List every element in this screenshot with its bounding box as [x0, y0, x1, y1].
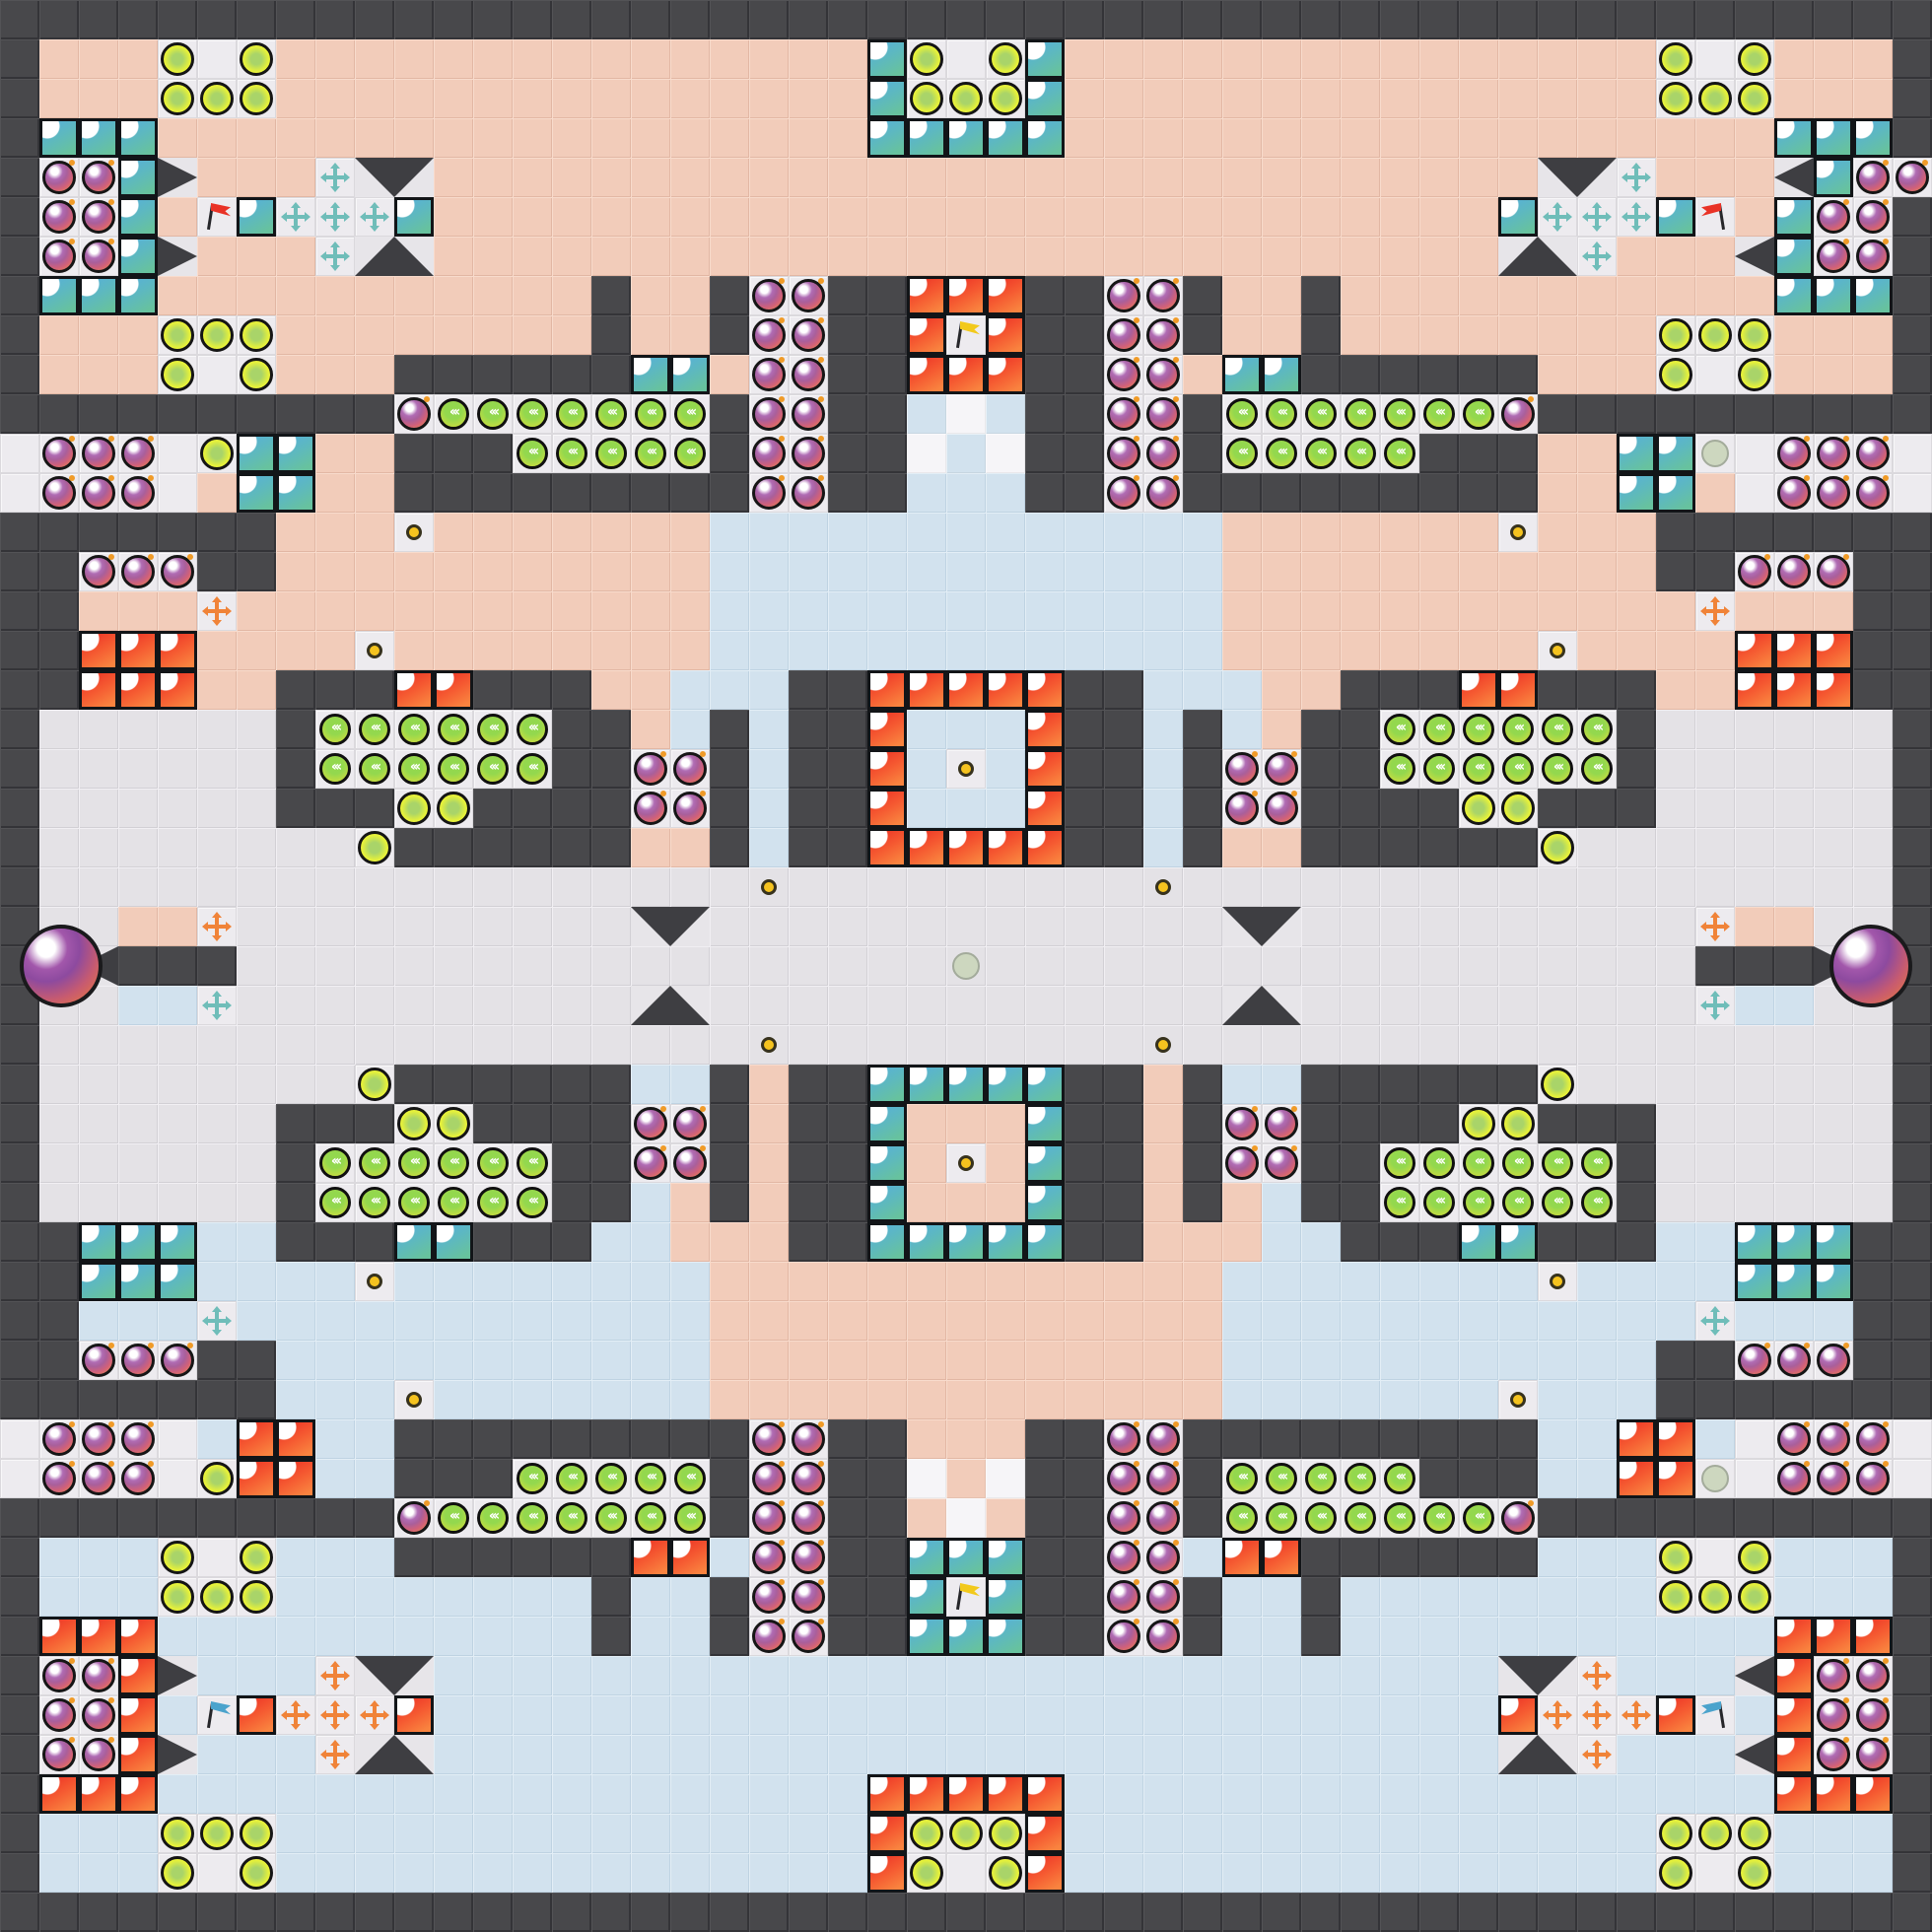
- teal-block[interactable]: [907, 1065, 946, 1104]
- bomb-item[interactable]: [1104, 1419, 1143, 1459]
- bomb-item[interactable]: [789, 276, 828, 315]
- bomb-item[interactable]: [1143, 276, 1183, 315]
- green-boost-item[interactable]: [1538, 1143, 1577, 1183]
- teal-block[interactable]: [1617, 434, 1656, 473]
- yellow-powerup-item[interactable]: [1656, 39, 1695, 79]
- bomb-item[interactable]: [1143, 473, 1183, 513]
- green-boost-item[interactable]: [1419, 1183, 1459, 1222]
- bomb-item[interactable]: [1814, 434, 1853, 473]
- yellow-powerup-item[interactable]: [1735, 1577, 1774, 1617]
- bomb-item[interactable]: [789, 1419, 828, 1459]
- bomb-item[interactable]: [1104, 1617, 1143, 1656]
- yellow-powerup-item[interactable]: [237, 355, 276, 394]
- teal-move-cross-icon[interactable]: [315, 158, 355, 197]
- green-boost-item[interactable]: [394, 1183, 434, 1222]
- red-block[interactable]: [1814, 1774, 1853, 1814]
- bomb-item[interactable]: [789, 1617, 828, 1656]
- bomb-item[interactable]: [1143, 1617, 1183, 1656]
- yellow-powerup-item[interactable]: [1735, 79, 1774, 118]
- teal-block[interactable]: [986, 1577, 1025, 1617]
- green-boost-item[interactable]: [434, 1143, 473, 1183]
- bomb-item[interactable]: [118, 473, 158, 513]
- bomb-item[interactable]: [1814, 1735, 1853, 1774]
- pellet-item[interactable]: [355, 631, 394, 670]
- teal-block[interactable]: [276, 473, 315, 513]
- green-boost-item[interactable]: [513, 1459, 552, 1498]
- green-boost-item[interactable]: [1262, 1498, 1301, 1538]
- pellet-item[interactable]: [749, 867, 789, 907]
- yellow-powerup-item[interactable]: [197, 79, 237, 118]
- bomb-item[interactable]: [118, 434, 158, 473]
- yellow-powerup-item[interactable]: [197, 1814, 237, 1853]
- yellow-powerup-item[interactable]: [237, 1538, 276, 1577]
- red-block[interactable]: [276, 1419, 315, 1459]
- green-boost-item[interactable]: [473, 1183, 513, 1222]
- yellow-powerup-item[interactable]: [986, 1814, 1025, 1853]
- green-boost-item[interactable]: [1459, 1498, 1498, 1538]
- bomb-item[interactable]: [1262, 1143, 1301, 1183]
- red-block[interactable]: [1025, 670, 1065, 710]
- teal-block[interactable]: [158, 1222, 197, 1262]
- bomb-item[interactable]: [1143, 1538, 1183, 1577]
- teal-block[interactable]: [867, 1065, 907, 1104]
- red-block[interactable]: [1853, 1617, 1893, 1656]
- green-boost-item[interactable]: [1498, 1183, 1538, 1222]
- pellet-item[interactable]: [1538, 631, 1577, 670]
- green-boost-item[interactable]: [1577, 749, 1617, 789]
- bomb-item[interactable]: [670, 749, 710, 789]
- right-orb-ball[interactable]: [1829, 925, 1912, 1007]
- teal-block[interactable]: [946, 1222, 986, 1262]
- bomb-item[interactable]: [394, 1498, 434, 1538]
- teal-block[interactable]: [1853, 276, 1893, 315]
- green-boost-item[interactable]: [591, 434, 631, 473]
- bomb-item[interactable]: [1893, 158, 1932, 197]
- teal-block[interactable]: [907, 118, 946, 158]
- green-boost-item[interactable]: [1380, 434, 1419, 473]
- bomb-item[interactable]: [1104, 355, 1143, 394]
- orange-move-cross-icon[interactable]: [1577, 1656, 1617, 1695]
- red-block[interactable]: [631, 1538, 670, 1577]
- yellow-powerup-item[interactable]: [197, 1577, 237, 1617]
- green-boost-item[interactable]: [1459, 1143, 1498, 1183]
- teal-block[interactable]: [237, 197, 276, 237]
- green-boost-item[interactable]: [355, 710, 394, 749]
- bomb-item[interactable]: [1262, 749, 1301, 789]
- bomb-item[interactable]: [789, 394, 828, 434]
- bomb-item[interactable]: [1222, 1143, 1262, 1183]
- yellow-powerup-item[interactable]: [986, 1853, 1025, 1893]
- teal-block[interactable]: [118, 158, 158, 197]
- yellow-powerup-item[interactable]: [158, 79, 197, 118]
- teal-block[interactable]: [118, 197, 158, 237]
- red-block[interactable]: [907, 828, 946, 867]
- bomb-item[interactable]: [1143, 1577, 1183, 1617]
- red-block[interactable]: [1025, 710, 1065, 749]
- red-block[interactable]: [1617, 1419, 1656, 1459]
- yellow-powerup-item[interactable]: [1735, 1538, 1774, 1577]
- green-boost-item[interactable]: [434, 1183, 473, 1222]
- bomb-item[interactable]: [39, 1656, 79, 1695]
- yellow-powerup-item[interactable]: [1656, 1577, 1695, 1617]
- teal-block[interactable]: [394, 197, 434, 237]
- yellow-powerup-item[interactable]: [158, 1538, 197, 1577]
- red-block[interactable]: [867, 749, 907, 789]
- red-block[interactable]: [867, 1814, 907, 1853]
- green-boost-item[interactable]: [1419, 1143, 1459, 1183]
- bomb-item[interactable]: [1104, 315, 1143, 355]
- red-block[interactable]: [1025, 1774, 1065, 1814]
- green-boost-item[interactable]: [355, 749, 394, 789]
- teal-block[interactable]: [1025, 1104, 1065, 1143]
- teal-block[interactable]: [118, 1262, 158, 1301]
- green-boost-item[interactable]: [1498, 1143, 1538, 1183]
- bomb-item[interactable]: [789, 1459, 828, 1498]
- bomb-item[interactable]: [1853, 1656, 1893, 1695]
- orange-move-cross-icon[interactable]: [197, 591, 237, 631]
- green-boost-item[interactable]: [1538, 1183, 1577, 1222]
- green-boost-item[interactable]: [631, 434, 670, 473]
- bomb-item[interactable]: [670, 1104, 710, 1143]
- bomb-item[interactable]: [749, 394, 789, 434]
- red-block[interactable]: [946, 276, 986, 315]
- bomb-item[interactable]: [1814, 1341, 1853, 1380]
- red-block[interactable]: [867, 710, 907, 749]
- yellow-powerup-item[interactable]: [986, 79, 1025, 118]
- red-block[interactable]: [1853, 1774, 1893, 1814]
- teal-block[interactable]: [1774, 1262, 1814, 1301]
- red-block[interactable]: [158, 670, 197, 710]
- bomb-item[interactable]: [1774, 434, 1814, 473]
- orange-move-cross-icon[interactable]: [355, 1695, 394, 1735]
- teal-move-cross-icon[interactable]: [315, 237, 355, 276]
- red-flag[interactable]: [197, 197, 237, 237]
- teal-block[interactable]: [907, 1222, 946, 1262]
- green-boost-item[interactable]: [670, 1498, 710, 1538]
- left-orb-ball[interactable]: [20, 925, 103, 1007]
- teal-block[interactable]: [867, 1143, 907, 1183]
- green-boost-item[interactable]: [315, 749, 355, 789]
- teal-block[interactable]: [1774, 1222, 1814, 1262]
- pellet-item[interactable]: [1498, 513, 1538, 552]
- teal-block[interactable]: [276, 434, 315, 473]
- yellow-powerup-item[interactable]: [1538, 1065, 1577, 1104]
- green-boost-item[interactable]: [1577, 710, 1617, 749]
- green-boost-item[interactable]: [1538, 749, 1577, 789]
- orange-move-cross-icon[interactable]: [1577, 1735, 1617, 1774]
- red-block[interactable]: [1025, 789, 1065, 828]
- bomb-item[interactable]: [118, 552, 158, 591]
- red-block[interactable]: [867, 828, 907, 867]
- bomb-item[interactable]: [1853, 197, 1893, 237]
- bomb-item[interactable]: [1143, 1498, 1183, 1538]
- bomb-item[interactable]: [1735, 552, 1774, 591]
- bomb-item[interactable]: [670, 789, 710, 828]
- pellet-item[interactable]: [1143, 867, 1183, 907]
- bomb-item[interactable]: [749, 473, 789, 513]
- teal-block[interactable]: [1262, 355, 1301, 394]
- yellow-flag[interactable]: [946, 1577, 986, 1617]
- yellow-powerup-item[interactable]: [1735, 1853, 1774, 1893]
- green-boost-item[interactable]: [1341, 1498, 1380, 1538]
- pellet-item[interactable]: [749, 1025, 789, 1065]
- yellow-powerup-item[interactable]: [237, 1853, 276, 1893]
- red-block[interactable]: [946, 355, 986, 394]
- yellow-flag[interactable]: [946, 315, 986, 355]
- yellow-powerup-item[interactable]: [237, 39, 276, 79]
- teal-block[interactable]: [946, 1538, 986, 1577]
- bomb-item[interactable]: [749, 1577, 789, 1617]
- teal-move-cross-icon[interactable]: [1695, 1301, 1735, 1341]
- green-boost-item[interactable]: [513, 710, 552, 749]
- red-block[interactable]: [946, 1774, 986, 1814]
- bomb-item[interactable]: [1498, 394, 1538, 434]
- bomb-item[interactable]: [79, 1695, 118, 1735]
- teal-block[interactable]: [867, 79, 907, 118]
- bomb-item[interactable]: [79, 1459, 118, 1498]
- pellet-item[interactable]: [355, 1262, 394, 1301]
- red-block[interactable]: [946, 670, 986, 710]
- red-block[interactable]: [237, 1459, 276, 1498]
- red-block[interactable]: [118, 631, 158, 670]
- red-block[interactable]: [1656, 1459, 1695, 1498]
- teal-block[interactable]: [1656, 197, 1695, 237]
- green-boost-item[interactable]: [552, 1459, 591, 1498]
- teal-block[interactable]: [1025, 118, 1065, 158]
- red-block[interactable]: [1774, 1774, 1814, 1814]
- green-boost-item[interactable]: [513, 1498, 552, 1538]
- bomb-item[interactable]: [631, 1104, 670, 1143]
- yellow-powerup-item[interactable]: [1735, 315, 1774, 355]
- bomb-item[interactable]: [1774, 1419, 1814, 1459]
- bomb-item[interactable]: [1222, 1104, 1262, 1143]
- green-boost-item[interactable]: [1262, 1459, 1301, 1498]
- bomb-item[interactable]: [1853, 473, 1893, 513]
- teal-move-cross-icon[interactable]: [1577, 237, 1617, 276]
- green-boost-item[interactable]: [670, 1459, 710, 1498]
- bomb-item[interactable]: [79, 552, 118, 591]
- green-boost-item[interactable]: [591, 394, 631, 434]
- green-boost-item[interactable]: [513, 749, 552, 789]
- green-boost-item[interactable]: [1459, 749, 1498, 789]
- bomb-item[interactable]: [394, 394, 434, 434]
- bomb-item[interactable]: [789, 473, 828, 513]
- green-boost-item[interactable]: [591, 1459, 631, 1498]
- bomb-item[interactable]: [39, 473, 79, 513]
- green-boost-item[interactable]: [1341, 434, 1380, 473]
- teal-block[interactable]: [986, 1065, 1025, 1104]
- yellow-powerup-item[interactable]: [1656, 1814, 1695, 1853]
- yellow-powerup-item[interactable]: [946, 79, 986, 118]
- teal-block[interactable]: [79, 118, 118, 158]
- red-block[interactable]: [1774, 631, 1814, 670]
- yellow-powerup-item[interactable]: [158, 1853, 197, 1893]
- red-block[interactable]: [1774, 1617, 1814, 1656]
- teal-block[interactable]: [867, 1104, 907, 1143]
- bomb-item[interactable]: [1814, 1459, 1853, 1498]
- bomb-item[interactable]: [789, 1538, 828, 1577]
- red-block[interactable]: [1459, 670, 1498, 710]
- bomb-item[interactable]: [79, 1419, 118, 1459]
- teal-block[interactable]: [986, 1538, 1025, 1577]
- green-boost-item[interactable]: [394, 710, 434, 749]
- red-block[interactable]: [986, 828, 1025, 867]
- green-boost-item[interactable]: [434, 749, 473, 789]
- bomb-item[interactable]: [118, 1459, 158, 1498]
- green-boost-item[interactable]: [591, 1498, 631, 1538]
- green-boost-item[interactable]: [1498, 749, 1538, 789]
- green-boost-item[interactable]: [1380, 394, 1419, 434]
- teal-move-cross-icon[interactable]: [197, 986, 237, 1025]
- green-boost-item[interactable]: [473, 1498, 513, 1538]
- yellow-powerup-item[interactable]: [434, 789, 473, 828]
- green-boost-item[interactable]: [1419, 1498, 1459, 1538]
- bomb-item[interactable]: [1814, 1656, 1853, 1695]
- yellow-powerup-item[interactable]: [355, 828, 394, 867]
- red-block[interactable]: [1656, 1695, 1695, 1735]
- green-boost-item[interactable]: [1459, 394, 1498, 434]
- bomb-item[interactable]: [1853, 1459, 1893, 1498]
- pellet-item[interactable]: [394, 513, 434, 552]
- yellow-powerup-item[interactable]: [394, 1104, 434, 1143]
- yellow-powerup-item[interactable]: [237, 1814, 276, 1853]
- red-block[interactable]: [1656, 1419, 1695, 1459]
- teal-move-cross-icon[interactable]: [1617, 197, 1656, 237]
- teal-block[interactable]: [986, 1222, 1025, 1262]
- bomb-item[interactable]: [1853, 1419, 1893, 1459]
- bomb-item[interactable]: [1104, 1538, 1143, 1577]
- bomb-item[interactable]: [1814, 552, 1853, 591]
- teal-block[interactable]: [907, 1577, 946, 1617]
- red-block[interactable]: [118, 1617, 158, 1656]
- bomb-item[interactable]: [1735, 1341, 1774, 1380]
- bomb-item[interactable]: [1853, 158, 1893, 197]
- bomb-item[interactable]: [1143, 1419, 1183, 1459]
- orange-move-cross-icon[interactable]: [197, 907, 237, 946]
- teal-move-cross-icon[interactable]: [355, 197, 394, 237]
- red-block[interactable]: [394, 1695, 434, 1735]
- bomb-item[interactable]: [118, 1341, 158, 1380]
- teal-block[interactable]: [1853, 118, 1893, 158]
- red-block[interactable]: [39, 1774, 79, 1814]
- bomb-item[interactable]: [1143, 394, 1183, 434]
- bomb-item[interactable]: [39, 1735, 79, 1774]
- yellow-powerup-item[interactable]: [986, 39, 1025, 79]
- orange-move-cross-icon[interactable]: [315, 1695, 355, 1735]
- teal-block[interactable]: [1774, 237, 1814, 276]
- red-block[interactable]: [986, 315, 1025, 355]
- yellow-powerup-item[interactable]: [434, 1104, 473, 1143]
- yellow-powerup-item[interactable]: [1656, 1538, 1695, 1577]
- bomb-item[interactable]: [749, 1419, 789, 1459]
- red-block[interactable]: [907, 670, 946, 710]
- teal-block[interactable]: [1498, 197, 1538, 237]
- orange-move-cross-icon[interactable]: [1617, 1695, 1656, 1735]
- red-block[interactable]: [79, 1617, 118, 1656]
- bomb-item[interactable]: [1814, 1419, 1853, 1459]
- teal-move-cross-icon[interactable]: [315, 197, 355, 237]
- yellow-powerup-item[interactable]: [1498, 1104, 1538, 1143]
- red-block[interactable]: [946, 828, 986, 867]
- yellow-powerup-item[interactable]: [1656, 315, 1695, 355]
- bomb-item[interactable]: [749, 434, 789, 473]
- green-boost-item[interactable]: [1459, 710, 1498, 749]
- yellow-powerup-item[interactable]: [907, 1853, 946, 1893]
- green-boost-item[interactable]: [631, 394, 670, 434]
- red-block[interactable]: [118, 1656, 158, 1695]
- red-block[interactable]: [1735, 631, 1774, 670]
- green-boost-item[interactable]: [434, 1498, 473, 1538]
- yellow-powerup-item[interactable]: [1735, 1814, 1774, 1853]
- blue-flag[interactable]: [197, 1695, 237, 1735]
- bomb-item[interactable]: [1222, 789, 1262, 828]
- red-block[interactable]: [986, 670, 1025, 710]
- teal-block[interactable]: [118, 1222, 158, 1262]
- green-boost-item[interactable]: [315, 710, 355, 749]
- bomb-item[interactable]: [631, 749, 670, 789]
- teal-block[interactable]: [1656, 434, 1695, 473]
- teal-block[interactable]: [1025, 1065, 1065, 1104]
- green-boost-item[interactable]: [473, 710, 513, 749]
- green-boost-item[interactable]: [1459, 1183, 1498, 1222]
- green-boost-item[interactable]: [394, 749, 434, 789]
- teal-block[interactable]: [946, 1065, 986, 1104]
- bomb-item[interactable]: [1853, 1695, 1893, 1735]
- teal-block[interactable]: [1617, 473, 1656, 513]
- teal-block[interactable]: [394, 1222, 434, 1262]
- red-block[interactable]: [434, 670, 473, 710]
- pellet-item[interactable]: [394, 1380, 434, 1419]
- green-boost-item[interactable]: [670, 434, 710, 473]
- orange-move-cross-icon[interactable]: [315, 1656, 355, 1695]
- red-block[interactable]: [1774, 670, 1814, 710]
- bomb-item[interactable]: [1853, 237, 1893, 276]
- red-block[interactable]: [118, 670, 158, 710]
- green-boost-item[interactable]: [394, 1143, 434, 1183]
- bomb-item[interactable]: [79, 237, 118, 276]
- bomb-item[interactable]: [79, 1656, 118, 1695]
- red-block[interactable]: [907, 315, 946, 355]
- orange-move-cross-icon[interactable]: [276, 1695, 315, 1735]
- red-block[interactable]: [1498, 670, 1538, 710]
- green-boost-item[interactable]: [631, 1498, 670, 1538]
- bomb-item[interactable]: [1143, 355, 1183, 394]
- teal-move-cross-icon[interactable]: [276, 197, 315, 237]
- bomb-item[interactable]: [118, 1419, 158, 1459]
- teal-block[interactable]: [1735, 1262, 1774, 1301]
- yellow-powerup-item[interactable]: [158, 1814, 197, 1853]
- teal-block[interactable]: [237, 434, 276, 473]
- red-block[interactable]: [394, 670, 434, 710]
- red-block[interactable]: [118, 1774, 158, 1814]
- red-block[interactable]: [1774, 1656, 1814, 1695]
- red-block[interactable]: [907, 355, 946, 394]
- teal-block[interactable]: [79, 276, 118, 315]
- yellow-powerup-item[interactable]: [907, 1814, 946, 1853]
- bomb-item[interactable]: [1143, 434, 1183, 473]
- green-boost-item[interactable]: [1380, 1498, 1419, 1538]
- bomb-item[interactable]: [670, 1143, 710, 1183]
- yellow-powerup-item[interactable]: [1656, 355, 1695, 394]
- bomb-item[interactable]: [1774, 552, 1814, 591]
- red-block[interactable]: [1025, 749, 1065, 789]
- bomb-item[interactable]: [39, 1419, 79, 1459]
- red-block[interactable]: [986, 276, 1025, 315]
- green-boost-item[interactable]: [355, 1143, 394, 1183]
- teal-block[interactable]: [1814, 1262, 1853, 1301]
- green-boost-item[interactable]: [1380, 710, 1419, 749]
- bomb-item[interactable]: [631, 789, 670, 828]
